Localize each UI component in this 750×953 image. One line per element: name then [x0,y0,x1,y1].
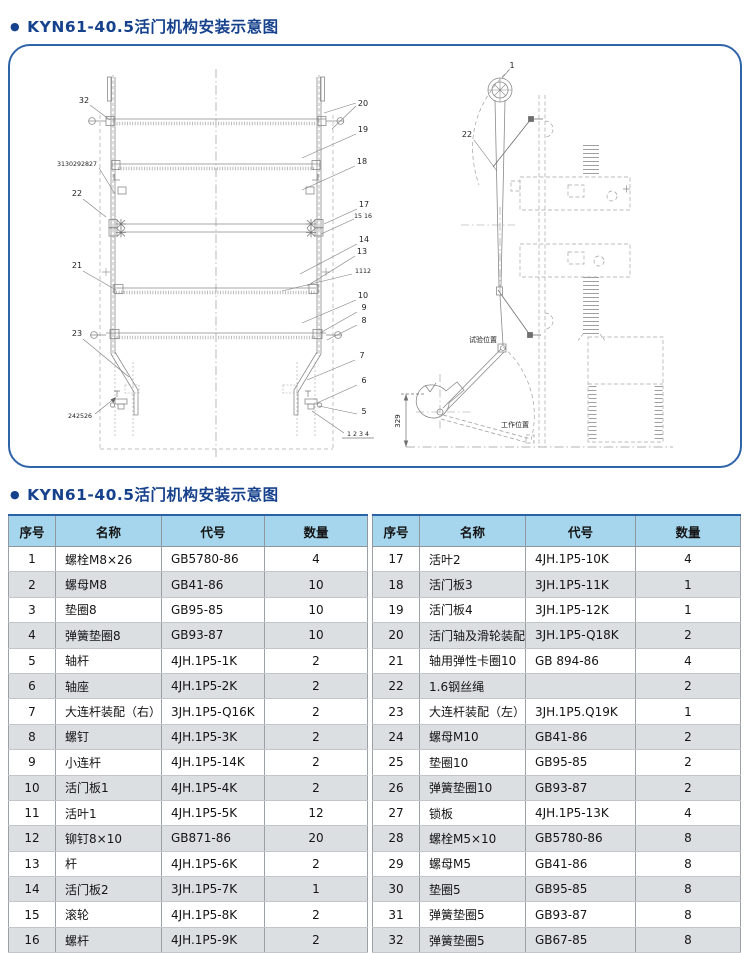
header-code: 代号 [162,515,265,547]
cell-name: 活门轴及滑轮装配 [420,623,526,648]
callout-15-16: 15 16 [354,213,372,220]
cell-seq: 12 [9,826,56,851]
cell-seq: 5 [9,648,56,673]
cell-name: 小连杆 [56,750,162,775]
cell-name: 垫圈10 [420,750,526,775]
table-header-row: 序号 名称 代号 数量 [373,515,741,547]
cell-code: GB93-87 [526,902,636,927]
cell-qty: 8 [636,902,741,927]
cell-seq: 9 [9,750,56,775]
cell-name: 活门板4 [420,597,526,622]
table-row: 8螺钉4JH.1P5-3K2 [9,724,368,749]
cell-qty: 2 [265,699,368,724]
table-row: 27锁板4JH.1P5-13K4 [373,800,741,825]
cell-qty: 2 [636,724,741,749]
cell-name: 螺母M5 [420,851,526,876]
label-work-position: 工作位置 [501,420,529,429]
cell-qty: 4 [636,800,741,825]
pulley-icon [488,78,512,102]
cell-seq: 11 [9,800,56,825]
cell-seq: 31 [373,902,420,927]
cell-code: 4JH.1P5-14K [162,750,265,775]
table-row: 24螺母M10GB41-862 [373,724,741,749]
callout-1-2-3-4: 1 2 3 4 [347,431,369,438]
cell-code: 3JH.1P5-11K [526,572,636,597]
cell-name: 螺钉 [56,724,162,749]
cell-code: 4JH.1P5-1K [162,648,265,673]
cell-qty: 4 [636,547,741,572]
cell-code: GB41-86 [526,851,636,876]
cell-qty: 2 [265,775,368,800]
cell-code [526,673,636,698]
cell-seq: 21 [373,648,420,673]
cell-qty: 2 [636,673,741,698]
table-row: 14活门板23JH.1P5-7K1 [9,877,368,902]
lever-arm-test [443,344,506,411]
cell-code: GB871-86 [162,826,265,851]
table-row: 32弹簧垫圈5GB67-858 [373,927,741,952]
cell-seq: 30 [373,877,420,902]
cell-qty: 8 [636,877,741,902]
cell-seq: 26 [373,775,420,800]
cell-name: 垫圈5 [420,877,526,902]
callout-18: 18 [357,157,367,166]
installation-diagram-panel: 32 3130292827 22 21 23 242526 20 19 18 1… [8,44,742,468]
front-view-leaders [83,103,374,438]
front-view-callouts: 32 3130292827 22 21 23 242526 20 19 18 1… [57,96,372,438]
table-row: 29螺母M5GB41-868 [373,851,741,876]
page-title: ● KYN61-40.5活门机构安装示意图 [10,15,279,37]
cell-qty: 2 [265,648,368,673]
cell-seq: 29 [373,851,420,876]
cell-seq: 7 [9,699,56,724]
cell-name: 轴座 [56,673,162,698]
cell-qty: 8 [636,927,741,952]
cell-name: 滚轮 [56,902,162,927]
cell-qty: 1 [636,597,741,622]
cell-qty: 12 [265,800,368,825]
table-row: 9小连杆4JH.1P5-14K2 [9,750,368,775]
table-row: 5轴杆4JH.1P5-1K2 [9,648,368,673]
callout-17: 17 [359,200,369,209]
truck-box [588,337,663,442]
cell-seq: 1 [9,547,56,572]
header-seq: 序号 [9,515,56,547]
installation-diagram: 32 3130292827 22 21 23 242526 20 19 18 1… [11,47,739,464]
interlock-rod-upper [493,117,543,168]
callout-19: 19 [358,125,368,134]
callout-7: 7 [359,351,364,360]
cell-name: 杆 [56,851,162,876]
cell-seq: 16 [9,927,56,952]
cell-code: 3JH.1P5-12K [526,597,636,622]
cell-qty: 1 [265,877,368,902]
cell-name: 活叶1 [56,800,162,825]
cell-code: 4JH.1P5-13K [526,800,636,825]
cell-name: 大连杆装配（左） [420,699,526,724]
cell-code: 3JH.1P5-7K [162,877,265,902]
cell-qty: 4 [265,547,368,572]
header-seq: 序号 [373,515,420,547]
cell-seq: 19 [373,597,420,622]
table-row: 31弹簧垫圈5GB93-878 [373,902,741,927]
cell-qty: 2 [265,673,368,698]
callout-14: 14 [359,235,369,244]
cell-name: 大连杆装配（右） [56,699,162,724]
header-name: 名称 [56,515,162,547]
cell-seq: 17 [373,547,420,572]
callout-22: 22 [72,189,82,198]
cell-seq: 14 [9,877,56,902]
table-row: 21轴用弹性卡圈10GB 894-864 [373,648,741,673]
cell-qty: 2 [265,851,368,876]
cabinet-wall [539,95,553,447]
header-name: 名称 [420,515,526,547]
table-row: 13杆4JH.1P5-6K2 [9,851,368,876]
table-row: 16螺杆4JH.1P5-9K2 [9,927,368,952]
cell-code: GB93-87 [162,623,265,648]
callout-23: 23 [72,329,82,338]
table-row: 20活门轴及滑轮装配3JH.1P5-Q18K2 [373,623,741,648]
cell-qty: 2 [265,902,368,927]
side-view [401,69,673,447]
cell-qty: 8 [636,826,741,851]
cell-name: 螺母M8 [56,572,162,597]
callout-8: 8 [361,316,366,325]
front-view [89,69,345,457]
cell-name: 弹簧垫圈5 [420,902,526,927]
cell-name: 弹簧垫圈8 [56,623,162,648]
cell-name: 活门板2 [56,877,162,902]
cell-name: 螺母M10 [420,724,526,749]
table-section-title-text: KYN61-40.5活门机构安装示意图 [27,483,278,505]
dimension-value: 329 [394,414,402,427]
callout-10: 10 [358,291,368,300]
table-row: 17活叶24JH.1P5-10K4 [373,547,741,572]
table-row: 12铆钉8×10GB871-8620 [9,826,368,851]
side-view-labels: 1 22 试验位置 工作位置 329 [394,61,529,429]
cell-code: GB67-85 [526,927,636,952]
table-row: 2螺母M8GB41-8610 [9,572,368,597]
cell-code: 4JH.1P5-6K [162,851,265,876]
cell-code: GB95-85 [162,597,265,622]
cell-qty: 10 [265,623,368,648]
bullet-icon: ● [10,21,20,32]
cell-code: 4JH.1P5-5K [162,800,265,825]
cell-qty: 4 [636,648,741,673]
cell-qty: 2 [636,775,741,800]
cell-name: 1.6钢丝绳 [420,673,526,698]
table-row: 4弹簧垫圈8GB93-8710 [9,623,368,648]
cell-seq: 25 [373,750,420,775]
cell-seq: 4 [9,623,56,648]
cell-name: 螺栓M8×26 [56,547,162,572]
cell-qty: 10 [265,597,368,622]
table-row: 6轴座4JH.1P5-2K2 [9,673,368,698]
cell-seq: 10 [9,775,56,800]
table-header-row: 序号 名称 代号 数量 [9,515,368,547]
callout-20: 20 [358,99,368,108]
header-qty: 数量 [265,515,368,547]
cell-seq: 23 [373,699,420,724]
cell-name: 弹簧垫圈5 [420,927,526,952]
table-row: 1螺栓M8×26GB5780-864 [9,547,368,572]
table-row: 10活门板14JH.1P5-4K2 [9,775,368,800]
cell-qty: 2 [265,750,368,775]
cell-seq: 8 [9,724,56,749]
cell-name: 轴用弹性卡圈10 [420,648,526,673]
cell-seq: 18 [373,572,420,597]
table-row: 28螺栓M5×10GB5780-868 [373,826,741,851]
cell-seq: 15 [9,902,56,927]
cell-code: 3JH.1P5-Q16K [162,699,265,724]
cell-seq: 22 [373,673,420,698]
cell-code: 3JH.1P5.Q19K [526,699,636,724]
table-row: 30垫圈5GB95-858 [373,877,741,902]
callout-22-side: 22 [462,130,472,139]
table-row: 7大连杆装配（右）3JH.1P5-Q16K2 [9,699,368,724]
cell-code: GB5780-86 [526,826,636,851]
table-row: 221.6钢丝绳2 [373,673,741,698]
cell-name: 螺杆 [56,927,162,952]
cell-qty: 1 [636,699,741,724]
cell-seq: 6 [9,673,56,698]
cell-seq: 2 [9,572,56,597]
cell-code: GB 894-86 [526,648,636,673]
cell-code: GB93-87 [526,775,636,800]
cell-qty: 1 [636,572,741,597]
cell-name: 锁板 [420,800,526,825]
table-row: 25垫圈10GB95-852 [373,750,741,775]
table-row: 23大连杆装配（左）3JH.1P5.Q19K1 [373,699,741,724]
table-row: 15滚轮4JH.1P5-8K2 [9,902,368,927]
cell-name: 垫圈8 [56,597,162,622]
parts-table-right: 序号 名称 代号 数量 17活叶24JH.1P5-10K418活门板33JH.1… [372,514,741,953]
table-row: 11活叶14JH.1P5-5K12 [9,800,368,825]
cell-code: 3JH.1P5-Q18K [526,623,636,648]
cell-code: GB41-86 [162,572,265,597]
cell-code: 4JH.1P5-4K [162,775,265,800]
cell-seq: 27 [373,800,420,825]
cell-code: GB5780-86 [162,547,265,572]
cell-qty: 2 [265,724,368,749]
cell-code: 4JH.1P5-8K [162,902,265,927]
parts-table-left: 序号 名称 代号 数量 1螺栓M8×26GB5780-8642螺母M8GB41-… [8,514,368,953]
cell-name: 铆钉8×10 [56,826,162,851]
callout-13: 13 [357,247,367,256]
header-qty: 数量 [636,515,741,547]
cell-code: GB95-85 [526,750,636,775]
cell-qty: 8 [636,851,741,876]
callout-9: 9 [361,303,366,312]
dimension-329 [401,394,425,447]
cell-code: 4JH.1P5-9K [162,927,265,952]
interlock-rod-lower [498,290,541,338]
cell-qty: 10 [265,572,368,597]
cell-seq: 28 [373,826,420,851]
cell-qty: 2 [265,927,368,952]
table-row: 26弹簧垫圈10GB93-872 [373,775,741,800]
label-test-position: 试验位置 [469,335,497,344]
cell-seq: 20 [373,623,420,648]
cell-name: 螺栓M5×10 [420,826,526,851]
cell-name: 活门板1 [56,775,162,800]
rope-datum-lines [461,207,515,299]
cell-name: 轴杆 [56,648,162,673]
cell-qty: 2 [636,750,741,775]
cell-seq: 24 [373,724,420,749]
table-section-title: ● KYN61-40.5活门机构安装示意图 [10,483,279,505]
callout-24-25-26: 242526 [68,413,92,420]
cell-seq: 3 [9,597,56,622]
callout-31-30-29-28-27: 3130292827 [57,161,97,168]
callout-6: 6 [361,376,366,385]
table-row: 19活门板43JH.1P5-12K1 [373,597,741,622]
cell-name: 活门板3 [420,572,526,597]
cell-seq: 32 [373,927,420,952]
cell-name: 弹簧垫圈10 [420,775,526,800]
header-code: 代号 [526,515,636,547]
cell-name: 活叶2 [420,547,526,572]
cell-qty: 2 [636,623,741,648]
right-leg [114,352,322,437]
callout-32: 32 [79,96,89,105]
bullet-icon: ● [10,489,20,500]
cell-qty: 20 [265,826,368,851]
callout-1: 1 [509,61,514,70]
cell-code: GB41-86 [526,724,636,749]
callout-21: 21 [72,261,82,270]
cell-code: 4JH.1P5-10K [526,547,636,572]
cell-seq: 13 [9,851,56,876]
callout-5: 5 [361,407,366,416]
cell-code: 4JH.1P5-3K [162,724,265,749]
mechanism-housing-upper [511,177,630,210]
cell-code: GB95-85 [526,877,636,902]
table-row: 18活门板33JH.1P5-11K1 [373,572,741,597]
callout-11-12: 1112 [355,268,371,275]
page-title-text: KYN61-40.5活门机构安装示意图 [27,15,278,37]
table-row: 3垫圈8GB95-8510 [9,597,368,622]
lever-arm-work [441,415,534,443]
cell-code: 4JH.1P5-2K [162,673,265,698]
mechanism-housing-lower [520,244,630,277]
